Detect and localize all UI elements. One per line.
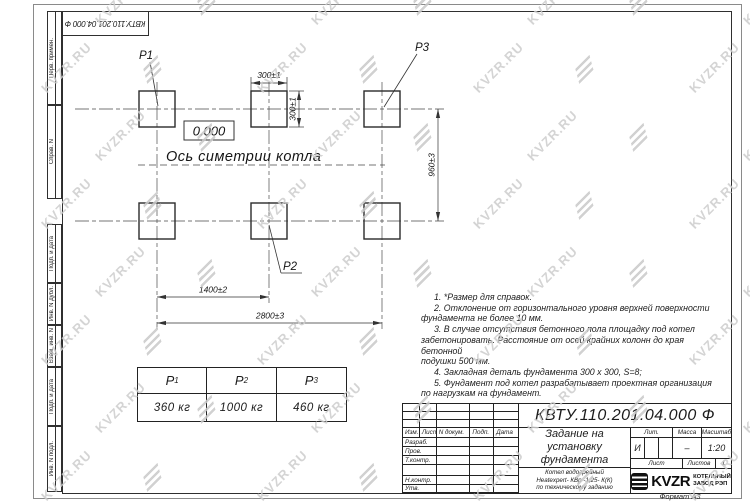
title-block-empty-cell [437, 412, 471, 420]
dimension-arrow [373, 321, 382, 325]
kvzr-logo-text: KVZR [651, 473, 690, 490]
p1-sub: 1 [174, 376, 178, 385]
title-block-empty-cell [470, 404, 494, 412]
load-table-header-p3: P3 [277, 368, 346, 394]
note-5: 5. Фундамент под котел разрабатывает про… [421, 378, 713, 399]
title-block-empty-cell [494, 476, 518, 485]
title-block-empty-cell [437, 438, 471, 447]
dimension-text-full-span: 2800±3 [255, 311, 285, 321]
dimension-arrow [436, 212, 440, 221]
title-block-label: Т.контр. [403, 456, 437, 465]
dimension-arrow [260, 295, 269, 299]
point-label-p3: P3 [415, 42, 430, 54]
title-block-empty-cell [470, 420, 494, 428]
title-block-empty-cell [470, 476, 494, 485]
title-block-empty-cell [403, 465, 437, 476]
title-block-empty-cell [470, 465, 494, 476]
title-block-empty-cell [494, 465, 518, 476]
point-label-p1: P1 [139, 50, 153, 62]
title-block-empty-cell [437, 465, 471, 476]
drawing-designation: КВТУ.110.201.04.000 Ф [519, 404, 731, 428]
load-value-p2: 1000 кг [207, 394, 276, 421]
sheets-value: 1 [716, 459, 731, 469]
mass-label: Масса [673, 428, 702, 438]
title-block-empty-cell [470, 412, 494, 420]
symmetry-axis-label: Ось симетрии котла [166, 149, 321, 165]
lit-label: Лит. [631, 428, 673, 438]
lit-cell-empty [659, 438, 673, 459]
load-value-p1: 360 кг [138, 394, 207, 421]
title-block-empty-cell [470, 447, 494, 456]
title-block-label: Лист [420, 428, 437, 438]
company-name: КОТЕЛЬНЫЙ ЗАВОД РЭП [693, 474, 731, 487]
title-block-empty-cell [437, 420, 471, 428]
title-block-empty-cell [437, 485, 471, 493]
sheets-label: Листов [683, 459, 716, 469]
title-block-empty-cell [420, 404, 437, 412]
title-block-empty-cell [470, 485, 494, 493]
title-block-empty-cell [470, 456, 494, 465]
load-value-p3: 460 кг [277, 394, 346, 421]
company-logo-block: KVZR КОТЕЛЬНЫЙ ЗАВОД РЭП [631, 469, 731, 493]
dimension-text-pad-width: 300±1 [257, 70, 281, 80]
kvzr-logo-icon [631, 473, 648, 490]
title-block-right-section: КВТУ.110.201.04.000 Ф Задание на установ… [519, 404, 731, 493]
sheet-row: Лист Листов 1 [631, 459, 731, 469]
scale-label: Масштаб [702, 428, 731, 438]
dimension-arrow [157, 295, 166, 299]
lit-value: И [631, 438, 645, 459]
technical-notes: 1. *Размер для справок. 2. Отклонение от… [421, 292, 713, 399]
scale-value: 1:20 [702, 438, 731, 459]
lit-cell-empty [645, 438, 659, 459]
title-block-empty-cell [437, 456, 471, 465]
note-3: 3. В случае отсутствия бетонного пола пл… [421, 324, 713, 367]
drawing-title: Задание на установку фундамента [519, 428, 631, 468]
dimension-arrow [297, 118, 301, 127]
title-block-label: Подп. [470, 428, 494, 438]
dimension-text-pad-height: 300±1 [288, 97, 298, 121]
title-block-label: Утв. [403, 485, 437, 493]
title-block-empty-cell [494, 412, 518, 420]
title-block-empty-cell [494, 404, 518, 412]
note-2: 2. Отклонение от горизонтального уровня … [421, 303, 713, 324]
load-table-header-p1: P1 [138, 368, 207, 394]
elevation-mark-value: 0.000 [193, 124, 226, 139]
title-block-empty-cell [403, 412, 420, 420]
note-1: 1. *Размер для справок. [421, 292, 713, 303]
title-block-empty-cell [437, 404, 471, 412]
lit-mass-scale-values: И – 1:20 [631, 438, 731, 459]
load-table: P1 P2 P3 360 кг 1000 кг 460 кг [137, 367, 347, 422]
title-block-empty-cell [494, 420, 518, 428]
title-block-empty-cell [437, 447, 471, 456]
p3-sub: 3 [313, 376, 317, 385]
title-block: Изм.ЛистN докум.Подп.ДатаРазраб.Пров.Т.к… [402, 403, 732, 494]
lit-mass-scale-header: Лит. Масса Масштаб [631, 428, 731, 438]
drawing-subtitle: Котел водогрейный Heatexpert- КВр -1,25-… [519, 468, 631, 493]
title-block-empty-cell [494, 456, 518, 465]
note-4: 4. Закладная деталь фундамента 300 x 300… [421, 367, 713, 378]
p2-sub: 2 [244, 376, 248, 385]
dimension-arrow [278, 81, 287, 85]
title-block-label: Пров. [403, 447, 437, 456]
title-block-empty-cell [494, 485, 518, 493]
title-block-label: Разраб. [403, 438, 437, 447]
title-block-label: Н.контр. [403, 476, 437, 485]
title-block-label: N докум. [437, 428, 471, 438]
title-block-empty-cell [470, 438, 494, 447]
dimension-arrow [251, 81, 260, 85]
title-block-empty-cell [494, 438, 518, 447]
dimension-arrow [297, 91, 301, 100]
title-block-label: Изм. [403, 428, 420, 438]
title-block-empty-cell [420, 420, 437, 428]
dimension-arrow [436, 109, 440, 118]
load-table-header-p2: P2 [207, 368, 276, 394]
p3-symbol: P [305, 373, 314, 388]
title-block-signature-section: Изм.ЛистN докум.Подп.ДатаРазраб.Пров.Т.к… [403, 404, 519, 493]
title-block-empty-cell [494, 447, 518, 456]
dimension-arrow [157, 321, 166, 325]
title-block-empty-cell [420, 412, 437, 420]
p1-symbol: P [166, 373, 175, 388]
title-block-label: Дата [494, 428, 518, 438]
title-block-empty-cell [437, 476, 471, 485]
title-block-empty-cell [403, 420, 420, 428]
leader-line-p2 [269, 225, 281, 273]
mass-value: – [673, 438, 702, 459]
p2-symbol: P [235, 373, 244, 388]
sheet-label: Лист [631, 459, 683, 469]
dimension-text-row-spacing: 960±3 [427, 153, 437, 177]
point-label-p2: P2 [283, 261, 298, 273]
dimension-text-mid-span: 1400±2 [199, 285, 228, 295]
title-block-empty-cell [403, 404, 420, 412]
